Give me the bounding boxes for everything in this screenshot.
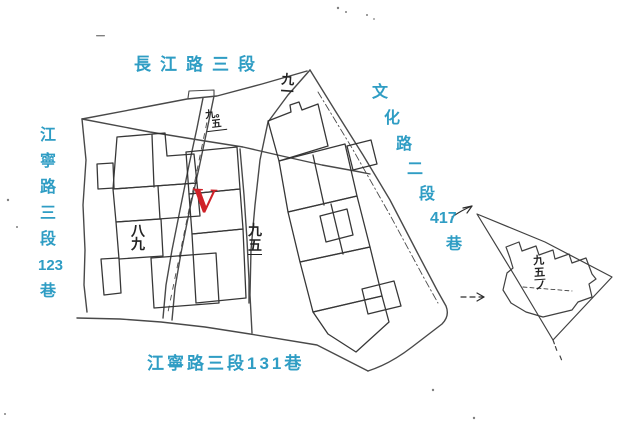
left-block-buildings: [97, 133, 246, 308]
street-label-char: 段: [419, 187, 435, 203]
street-label-jiangning-rd-sec3-lane131: 江寧路三段131巷: [147, 349, 304, 374]
street-label-char: 巷: [40, 284, 66, 300]
street-label-lane-number: 417: [430, 211, 457, 227]
parcel-label-95-small: 九。 五: [205, 109, 227, 132]
street-label-lane-number: 123: [38, 258, 66, 274]
parcel-label-95: 九 五: [248, 224, 262, 255]
street-label-char: 文: [372, 85, 388, 101]
parcel-label-91: 九 一: [280, 74, 295, 99]
street-label-char: 江: [40, 128, 66, 144]
street-label-jiangning-rd-sec3-lane123: 江 寧 路 三 段 123 巷: [40, 128, 66, 300]
street-label-char: 寧: [40, 154, 66, 170]
cadastral-map-canvas: 長江路三段 江 寧 路 三 段 123 巷 文 化 路 二 段 417 巷 江寧…: [0, 0, 640, 437]
street-label-char: 三: [40, 206, 66, 222]
parcel-label-89: 八 九: [131, 226, 145, 252]
red-v-marker: V: [191, 182, 218, 218]
street-label-changjiang-rd-sec3: 長江路三段: [134, 50, 264, 75]
map-linework: [0, 0, 640, 437]
street-label-char: 路: [396, 137, 412, 153]
street-label-char: 二: [407, 162, 423, 178]
right-block-buildings: [268, 102, 401, 352]
street-label-char: 路: [40, 180, 66, 196]
street-label-char: 巷: [446, 237, 462, 253]
street-label-char: 化: [384, 111, 400, 127]
street-label-char: 段: [40, 232, 66, 248]
